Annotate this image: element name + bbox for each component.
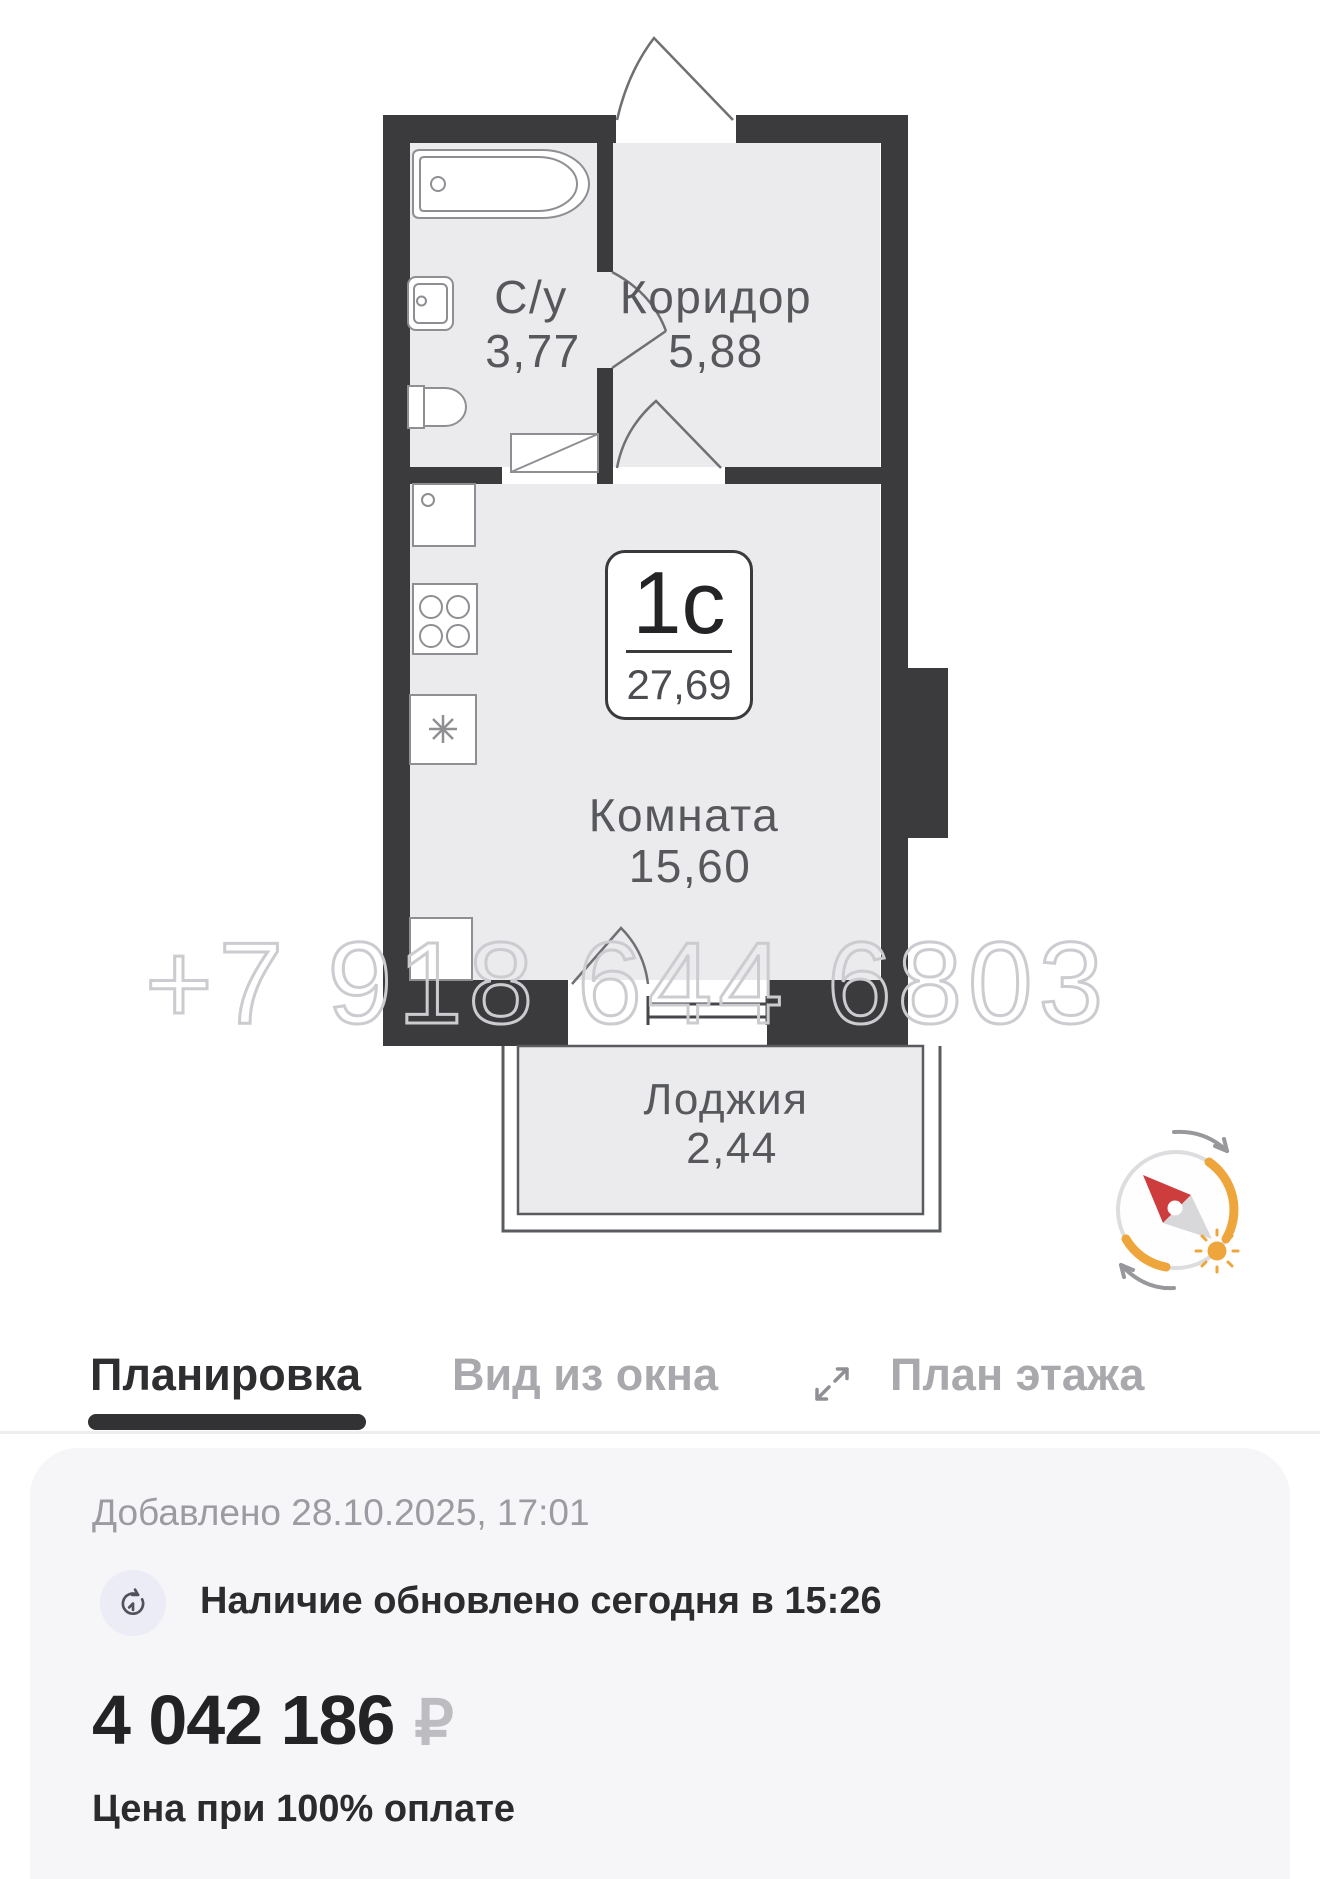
details-card: Добавлено 28.10.2025, 17:01 Наличие обно… xyxy=(30,1448,1290,1879)
tab-floor-plan[interactable]: План этажа xyxy=(890,1349,1144,1401)
fridge-icon xyxy=(413,484,475,546)
entrance-door-swing xyxy=(617,38,733,120)
stove-icon xyxy=(413,584,477,654)
listing-page: С/у 3,77 Коридор 5,88 Комната 15,60 Лодж… xyxy=(0,0,1320,1879)
watermark-phone: +7 918 644 6803 xyxy=(145,916,1109,1050)
compass-icon[interactable] xyxy=(1100,1118,1250,1298)
toilet-icon xyxy=(408,386,424,428)
tabs-divider xyxy=(0,1431,1320,1434)
area-label-bathroom: 3,77 xyxy=(485,324,581,378)
ruble-sign: ₽ xyxy=(414,1686,453,1759)
bathtub-icon xyxy=(413,150,589,218)
price-value: 4 042 186 xyxy=(92,1680,394,1760)
wall-pilaster xyxy=(881,668,948,838)
added-date: Добавлено 28.10.2025, 17:01 xyxy=(92,1492,590,1534)
unit-badge: 1с 27,69 xyxy=(605,550,753,720)
needle-pivot xyxy=(1168,1201,1183,1216)
room-label-corridor: Коридор xyxy=(620,270,812,324)
price-row: 4 042 186 ₽ xyxy=(92,1680,454,1760)
active-tab-indicator xyxy=(88,1414,366,1430)
tab-layout[interactable]: Планировка xyxy=(90,1349,361,1401)
unit-type: 1с xyxy=(633,561,726,645)
kitchen-sink-icon xyxy=(410,695,476,764)
clock-icon xyxy=(100,1570,166,1636)
unit-area: 27,69 xyxy=(626,661,731,709)
room-label-bathroom: С/у xyxy=(494,270,568,324)
area-label-loggia: 2,44 xyxy=(686,1124,778,1174)
area-label-living: 15,60 xyxy=(629,839,752,893)
sun-icon xyxy=(1196,1230,1238,1272)
area-label-corridor: 5,88 xyxy=(668,324,764,378)
closet-icon xyxy=(511,434,598,472)
room-label-loggia: Лоджия xyxy=(644,1075,809,1125)
room-label-living: Комната xyxy=(589,788,780,842)
room-door-opening xyxy=(613,467,725,484)
badge-divider xyxy=(626,650,731,653)
entrance-opening xyxy=(616,115,736,143)
price-note: Цена при 100% оплате xyxy=(92,1788,515,1831)
expand-icon[interactable] xyxy=(806,1358,858,1410)
tab-window-view[interactable]: Вид из окна xyxy=(452,1349,718,1401)
availability-status: Наличие обновлено сегодня в 15:26 xyxy=(200,1580,882,1623)
